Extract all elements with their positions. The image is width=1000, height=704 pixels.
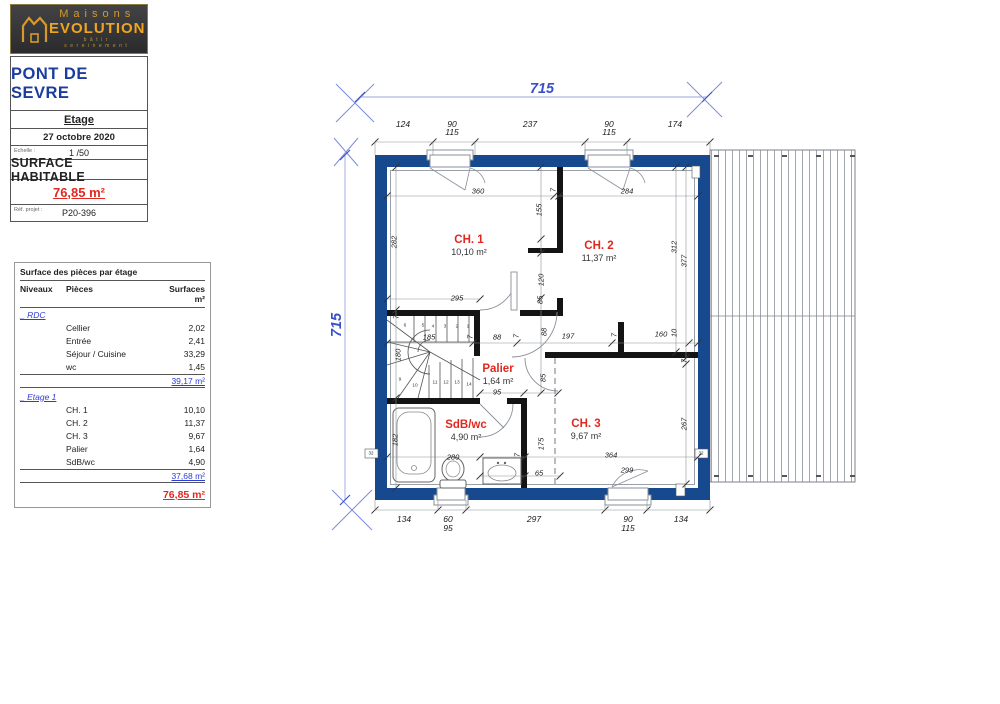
house-icon	[19, 12, 49, 46]
level-row: _ Etage 1	[20, 390, 205, 403]
areas-table-body: _ RDCCellier2,02Entrée2,41Séjour / Cuisi…	[20, 308, 205, 483]
col-niveaux: Niveaux	[20, 284, 66, 304]
subtotal-row: 37,68 m²	[20, 469, 205, 483]
ref-row: Réf. projet : P20-396	[11, 205, 147, 221]
areas-table-header: Niveaux Pièces Surfaces m²	[20, 281, 205, 308]
title-block: PONT DE SEVRE Etage 27 octobre 2020 Eche…	[10, 56, 148, 222]
deck-hatch-area	[710, 150, 855, 482]
room-area-row: SdB/wc4,90	[20, 455, 205, 468]
project-title: PONT DE SEVRE	[11, 57, 147, 111]
room-area-row: Palier1,64	[20, 442, 205, 455]
room-area-row: CH. 39,67	[20, 429, 205, 442]
room-area-row: wc1,45	[20, 360, 205, 373]
brand-tagline: bâtir sereinement	[49, 38, 146, 49]
room-area-row: CH. 211,37	[20, 416, 205, 429]
floor-plan-drawing	[330, 80, 890, 550]
ref-value: P20-396	[62, 208, 96, 218]
room-area-row: CH. 110,10	[20, 403, 205, 416]
floor-name: Etage	[11, 111, 147, 129]
plan-date: 27 octobre 2020	[11, 129, 147, 146]
toilet	[440, 457, 466, 488]
scale-label: Echelle :	[14, 148, 35, 154]
floor-plan: 715 715 12490115237901151741346095297901…	[330, 80, 890, 550]
ref-label: Réf. projet :	[14, 207, 42, 213]
brand-name-top: Maisons	[49, 9, 146, 21]
bathtub	[393, 408, 435, 482]
brand-text: Maisons EVOLUTION bâtir sereinement	[49, 9, 146, 49]
sink	[483, 458, 521, 484]
surface-label: SURFACE HABITABLE	[11, 160, 147, 180]
brand-name-bottom: EVOLUTION	[49, 21, 146, 37]
floor-plan-document: Maisons EVOLUTION bâtir sereinement PONT…	[0, 0, 1000, 704]
total-surface-row: 76,85 m²	[20, 489, 205, 501]
col-pieces: Pièces	[66, 284, 163, 304]
col-surfaces: Surfaces m²	[163, 284, 205, 304]
subtotal-row: 39,17 m²	[20, 374, 205, 388]
total-surface-value: 76,85 m²	[163, 489, 205, 501]
areas-table-title: Surface des pièces par étage	[20, 267, 205, 281]
level-row: _ RDC	[20, 308, 205, 321]
surface-value: 76,85 m²	[11, 180, 147, 205]
brand-logo: Maisons EVOLUTION bâtir sereinement	[10, 4, 148, 54]
room-area-row: Séjour / Cuisine33,29	[20, 347, 205, 360]
areas-table: Surface des pièces par étage Niveaux Piè…	[14, 262, 211, 508]
room-area-row: Entrée2,41	[20, 334, 205, 347]
room-area-row: Cellier2,02	[20, 321, 205, 334]
